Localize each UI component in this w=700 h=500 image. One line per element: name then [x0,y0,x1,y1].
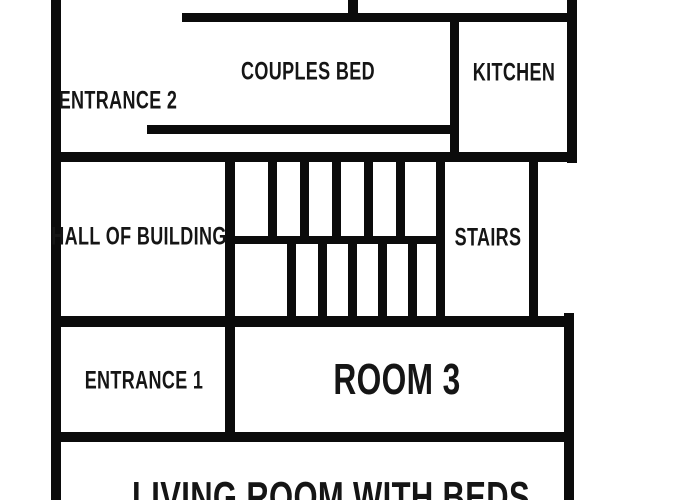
stair-tread-upper-1 [268,158,277,242]
wall-right-outer-upper [567,0,577,163]
wall-stairs-room-right [529,158,538,321]
room-label-stairs: STAIRS [455,226,522,251]
stair-tread-lower-4 [378,240,387,320]
wall-top [182,13,577,22]
room-label-kitchen: KITCHEN [473,61,556,86]
stair-tread-upper-3 [332,158,341,242]
room-label-couples-bed: COUPLES BED [241,60,375,85]
wall-top-stub [348,0,358,22]
stair-tread-upper-4 [364,158,373,242]
wall-kitchen-left [450,13,459,161]
floor-plan: ENTRANCE 2 COUPLES BED KITCHEN HALL OF B… [0,0,700,500]
stair-tread-lower-1 [287,240,296,320]
room-label-entrance2: ENTRANCE 2 [59,89,178,114]
wall-mid-horizontal [51,152,577,162]
stair-tread-upper-2 [300,158,309,242]
wall-right-outer-lower [564,313,574,500]
wall-hall-right [225,153,235,442]
wall-hall-bottom [51,316,573,327]
stair-tread-upper-5 [396,158,405,242]
room-label-hall: HALL OF BUILDING [51,225,226,250]
room-label-living-room: LIVING ROOM WITH BEDS [132,477,530,500]
wall-room-row-bottom [51,432,573,442]
stair-tread-lower-2 [318,240,327,320]
stair-tread-lower-5 [408,240,417,320]
wall-couples-bed-bottom [147,125,459,134]
stair-tread-lower-3 [348,240,357,320]
room-label-room3: ROOM 3 [333,358,460,402]
room-label-entrance1: ENTRANCE 1 [85,369,204,394]
